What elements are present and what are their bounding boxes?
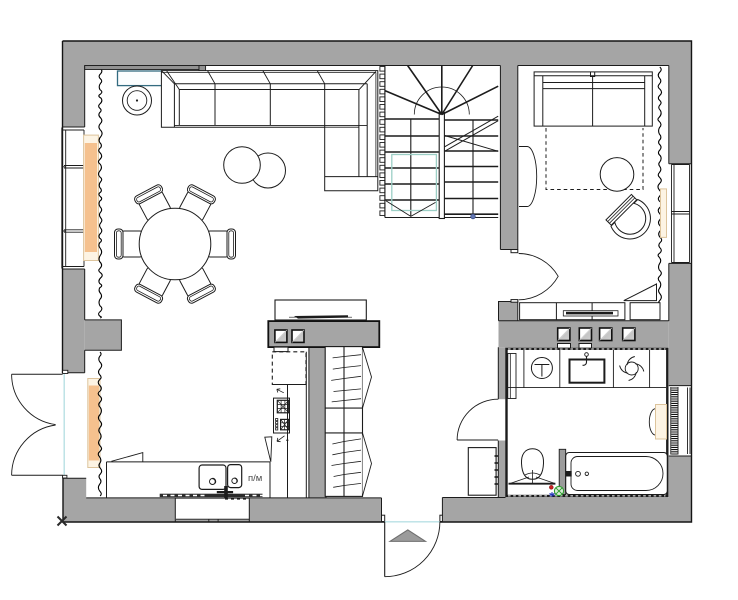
svg-text:п/м: п/м <box>248 473 262 484</box>
